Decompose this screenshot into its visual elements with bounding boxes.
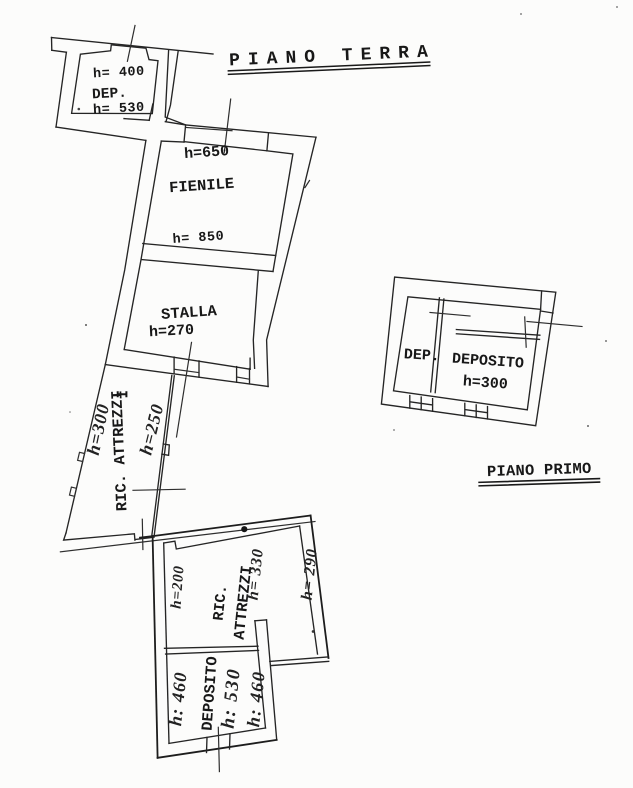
svg-text:RIC. ATTREZZI: RIC. ATTREZZI (108, 390, 131, 512)
svg-text:DEP.: DEP. (403, 346, 440, 365)
svg-text:DEPOSITO: DEPOSITO (451, 351, 524, 373)
svg-text:h= 530: h= 530 (93, 101, 145, 119)
svg-text:h= 330: h= 330 (245, 547, 267, 601)
svg-text:h: 460: h: 460 (165, 670, 191, 727)
svg-text:FIENILE: FIENILE (169, 175, 235, 197)
svg-text:h= 290: h= 290 (299, 547, 321, 601)
svg-text:h=270: h=270 (149, 322, 195, 341)
svg-text:DEP.: DEP. (92, 86, 128, 104)
svg-text:RIC.: RIC. (211, 584, 232, 622)
svg-text:h=650: h=650 (184, 143, 230, 163)
svg-text:PIANO PRIMO: PIANO PRIMO (487, 460, 592, 481)
svg-text:h= 400: h= 400 (93, 65, 145, 83)
svg-text:STALLA: STALLA (161, 302, 219, 324)
svg-text:h: 530: h: 530 (218, 667, 245, 730)
svg-text:h=300: h=300 (462, 373, 508, 393)
svg-text:h= 850: h= 850 (172, 229, 225, 248)
svg-text:h=200: h=200 (169, 565, 188, 609)
